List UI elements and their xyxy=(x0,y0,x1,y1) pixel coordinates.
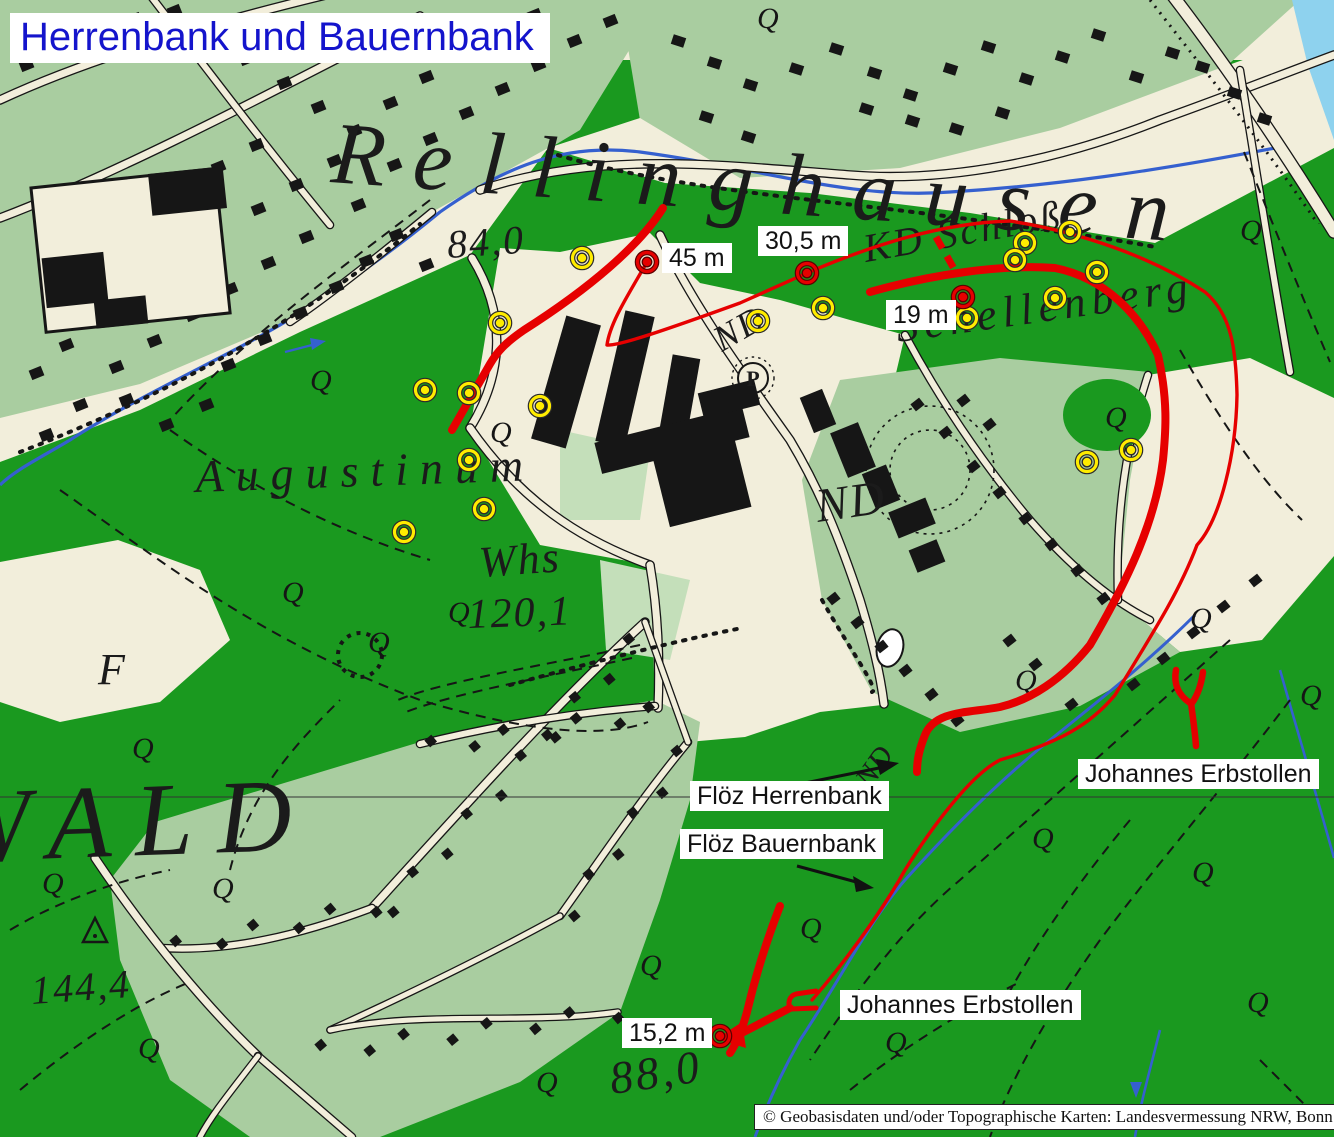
spring-symbol: Q xyxy=(368,626,390,659)
spring-symbol: Q xyxy=(640,949,662,982)
adit-label-johannes-erbstollen-east: Johannes Erbstollen xyxy=(1078,759,1319,789)
spring-symbol: Q xyxy=(536,1066,558,1099)
spring-symbol: Q xyxy=(1032,822,1054,855)
spring-symbol: Q xyxy=(800,912,822,945)
spring-symbol: Q xyxy=(310,364,332,397)
map-page: QQQQQQQQQQQQQQQQQQQQQQRellinghausen84,0A… xyxy=(0,0,1334,1137)
spring-symbol: Q xyxy=(282,576,304,609)
spring-symbol: Q xyxy=(1192,856,1214,889)
map-place-label: F xyxy=(97,645,126,694)
measurement-label-30-5m: 30,5 m xyxy=(758,226,848,256)
seam-label-bauernbank: Flöz Bauernbank xyxy=(680,829,883,859)
spring-symbol: Q xyxy=(1300,679,1322,712)
spring-symbol: Q xyxy=(132,732,154,765)
topographic-map: QQQQQQQQQQQQQQQQQQQQQQRellinghausen84,0A… xyxy=(0,0,1334,1137)
spring-symbol: Q xyxy=(1247,986,1269,1019)
page-title: Herrenbank und Bauernbank xyxy=(10,13,550,63)
measurement-label-19m: 19 m xyxy=(886,300,956,330)
adit-label-johannes-erbstollen-south: Johannes Erbstollen xyxy=(840,990,1081,1020)
measurement-label-45m: 45 m xyxy=(662,243,732,273)
map-place-label: Whs xyxy=(477,532,562,587)
spring-symbol: Q xyxy=(212,872,234,905)
seam-label-herrenbank: Flöz Herrenbank xyxy=(690,781,889,811)
map-place-label: P xyxy=(746,366,759,391)
map-place-label: 144,4 xyxy=(29,961,132,1013)
spring-symbol: Q xyxy=(1105,401,1127,434)
map-place-label: 84,0 xyxy=(445,217,526,267)
map-place-label: ND xyxy=(811,471,889,533)
map-place-label: 120,1 xyxy=(467,588,573,638)
map-place-label: WALD xyxy=(0,757,317,885)
spring-symbol: Q xyxy=(1240,214,1262,247)
spring-symbol: Q xyxy=(757,2,779,35)
spring-symbol: Q xyxy=(885,1026,907,1059)
measurement-label-15-2m: 15,2 m xyxy=(622,1018,712,1048)
copyright-notice: © Geobasisdaten und/oder Topographische … xyxy=(754,1104,1334,1130)
spring-symbol: Q xyxy=(138,1032,160,1065)
